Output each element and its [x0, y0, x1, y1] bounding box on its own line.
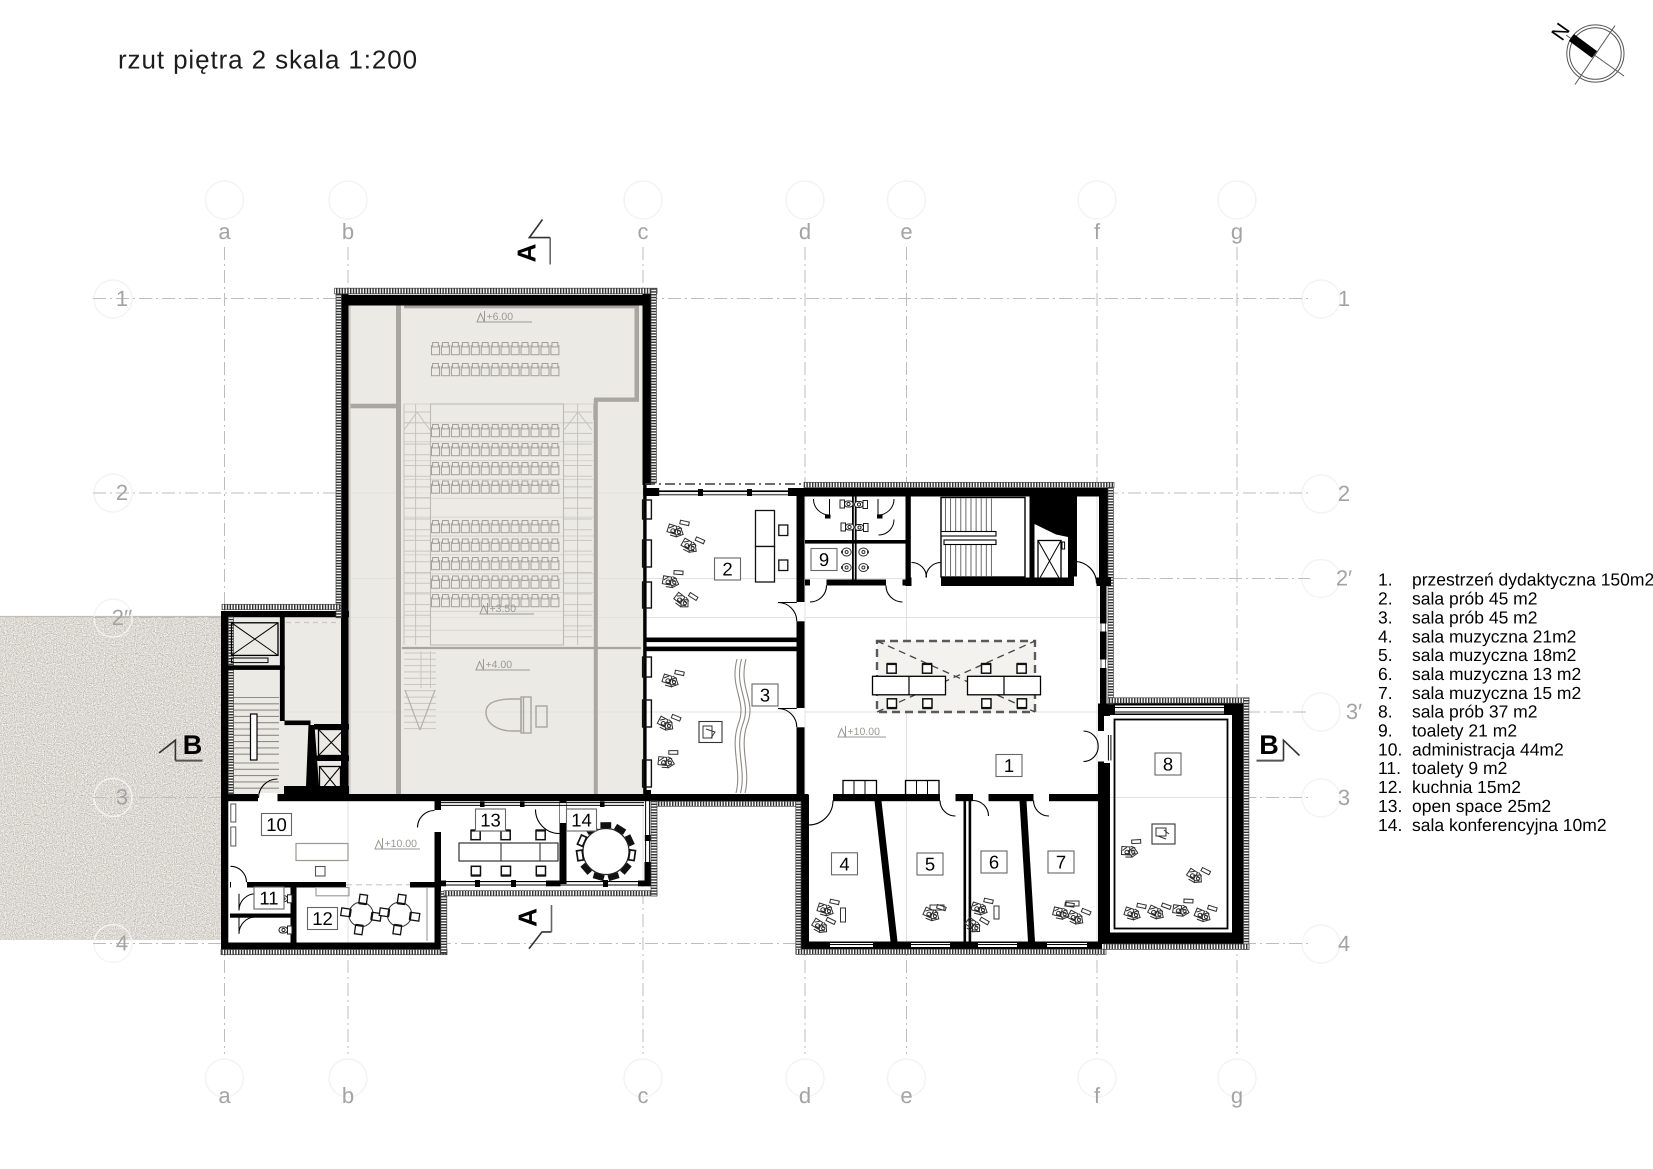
- svg-text:6.: 6.: [1378, 664, 1393, 684]
- svg-text:e: e: [900, 219, 912, 244]
- svg-text:d: d: [799, 1083, 811, 1108]
- svg-text:+4.00: +4.00: [486, 659, 513, 671]
- svg-text:B: B: [1259, 730, 1279, 760]
- svg-text:przestrzeń dydaktyczna 150m2: przestrzeń dydaktyczna 150m2: [1412, 570, 1653, 590]
- svg-text:b: b: [342, 1083, 354, 1108]
- svg-text:4: 4: [839, 853, 849, 874]
- svg-text:+10.00: +10.00: [385, 838, 418, 850]
- svg-text:14.: 14.: [1378, 815, 1402, 835]
- svg-text:3: 3: [116, 785, 128, 810]
- svg-text:11: 11: [259, 888, 278, 909]
- svg-text:12.: 12.: [1378, 777, 1402, 797]
- svg-text:toalety 21 m2: toalety 21 m2: [1412, 721, 1517, 741]
- svg-text:3.: 3.: [1378, 607, 1393, 627]
- svg-text:a: a: [218, 1083, 231, 1108]
- svg-text:sala prób 45 m2: sala prób 45 m2: [1412, 589, 1538, 609]
- svg-text:B: B: [183, 730, 203, 760]
- svg-text:3: 3: [760, 685, 770, 706]
- svg-text:b: b: [342, 219, 354, 244]
- svg-text:sala prób 37 m2: sala prób 37 m2: [1412, 702, 1538, 722]
- svg-text:+10.00: +10.00: [848, 726, 881, 738]
- svg-text:2′: 2′: [1336, 566, 1352, 591]
- svg-text:sala muzyczna 13 m2: sala muzyczna 13 m2: [1412, 664, 1581, 684]
- svg-text:+6.00: +6.00: [487, 311, 514, 323]
- svg-text:2: 2: [1338, 481, 1350, 506]
- svg-text:kuchnia 15m2: kuchnia 15m2: [1412, 777, 1521, 797]
- svg-text:8: 8: [1163, 754, 1173, 775]
- svg-text:sala muzyczna 21m2: sala muzyczna 21m2: [1412, 626, 1576, 646]
- svg-text:open space 25m2: open space 25m2: [1412, 796, 1551, 816]
- svg-text:11.: 11.: [1378, 758, 1401, 778]
- svg-text:4: 4: [116, 931, 128, 956]
- svg-text:2: 2: [116, 480, 128, 505]
- svg-text:sala konferencyjna 10m2: sala konferencyjna 10m2: [1412, 815, 1607, 835]
- svg-text:12: 12: [312, 908, 333, 929]
- svg-text:4.: 4.: [1378, 626, 1393, 646]
- svg-text:f: f: [1094, 1083, 1101, 1108]
- svg-text:+3.50: +3.50: [490, 603, 517, 615]
- svg-text:rzut piętra 2 skala 1:200: rzut piętra 2 skala 1:200: [118, 45, 418, 75]
- svg-text:1: 1: [116, 286, 128, 311]
- svg-text:e: e: [900, 1083, 912, 1108]
- svg-text:8.: 8.: [1378, 702, 1393, 722]
- svg-text:2: 2: [722, 559, 732, 580]
- svg-text:1: 1: [1004, 755, 1014, 776]
- svg-text:13.: 13.: [1378, 796, 1402, 816]
- svg-text:14: 14: [571, 810, 592, 831]
- svg-text:9.: 9.: [1378, 721, 1393, 741]
- svg-text:f: f: [1094, 219, 1101, 244]
- svg-text:9: 9: [819, 549, 829, 570]
- svg-text:d: d: [799, 219, 811, 244]
- svg-text:a: a: [218, 219, 231, 244]
- svg-text:5.: 5.: [1378, 645, 1393, 665]
- svg-text:7: 7: [1056, 852, 1066, 873]
- svg-text:c: c: [638, 1083, 649, 1108]
- svg-text:administracja 44m2: administracja 44m2: [1412, 739, 1564, 759]
- svg-text:1: 1: [1338, 286, 1350, 311]
- svg-text:c: c: [638, 219, 649, 244]
- svg-text:10.: 10.: [1378, 739, 1402, 759]
- svg-text:2.: 2.: [1378, 589, 1393, 609]
- svg-text:5: 5: [925, 854, 935, 875]
- svg-text:4: 4: [1338, 931, 1350, 956]
- svg-text:2′′: 2′′: [112, 605, 133, 630]
- svg-text:sala muzyczna 15 m2: sala muzyczna 15 m2: [1412, 683, 1581, 703]
- svg-text:g: g: [1231, 1083, 1243, 1108]
- svg-text:1.: 1.: [1378, 570, 1393, 590]
- svg-text:3′: 3′: [1346, 699, 1362, 724]
- svg-text:6: 6: [989, 852, 999, 873]
- svg-text:10: 10: [266, 814, 287, 835]
- svg-text:sala muzyczna 18m2: sala muzyczna 18m2: [1412, 645, 1576, 665]
- svg-text:g: g: [1231, 219, 1243, 244]
- svg-text:3: 3: [1338, 785, 1350, 810]
- svg-text:A: A: [513, 908, 543, 927]
- svg-text:toalety 9 m2: toalety 9 m2: [1412, 758, 1507, 778]
- svg-text:13: 13: [480, 810, 501, 831]
- svg-text:7.: 7.: [1378, 683, 1393, 703]
- svg-text:A: A: [512, 243, 542, 262]
- svg-text:sala prób 45 m2: sala prób 45 m2: [1412, 607, 1538, 627]
